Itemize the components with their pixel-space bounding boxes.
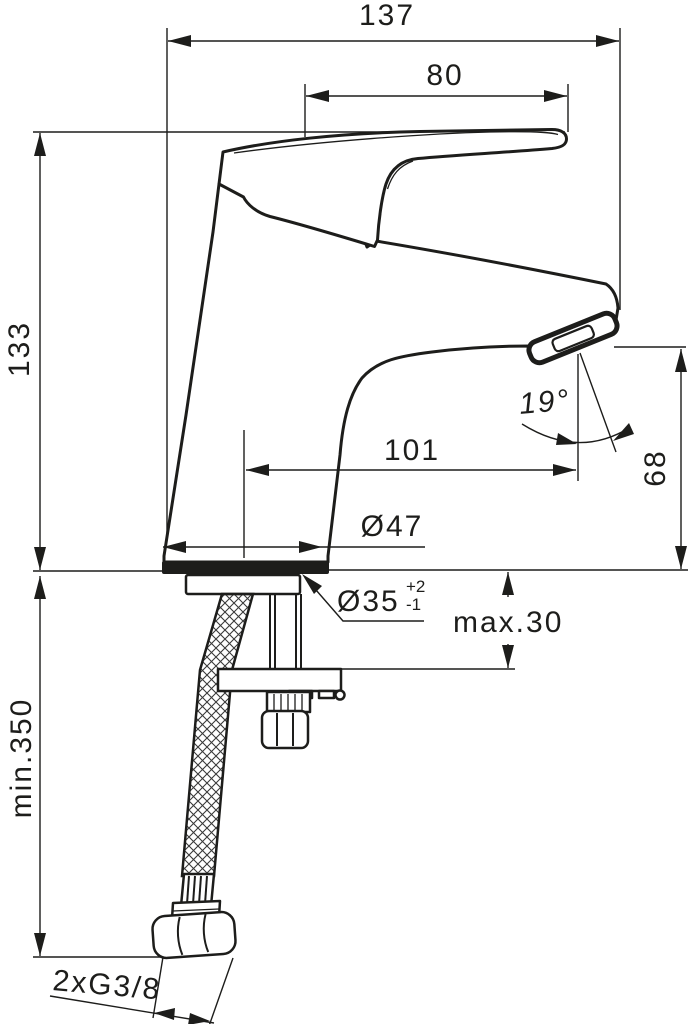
technical-drawing: 137 80 133 101 Ø47 19° 68 Ø35 +2 -1 max.…: [0, 0, 688, 1024]
undercounter-assembly: [152, 575, 345, 959]
supply-hose: [182, 594, 253, 876]
hose-connection-nut: [152, 911, 237, 959]
label-hose-length: min.350: [5, 698, 38, 819]
label-spout-height: 68: [639, 449, 672, 486]
mounting-shank: [270, 594, 301, 668]
label-hole-tolerance-plus: +2: [406, 577, 425, 596]
label-hole-diameter: Ø35: [337, 585, 400, 618]
mounting-nut: [262, 711, 308, 748]
label-height-above-deck: 133: [3, 321, 36, 377]
label-connection-thread: 2xG3/8: [51, 964, 162, 1006]
label-overall-width: 137: [359, 0, 415, 32]
drawing-page: 137 80 133 101 Ø47 19° 68 Ø35 +2 -1 max.…: [0, 0, 688, 1024]
label-base-diameter: Ø47: [361, 510, 424, 543]
mounting-stud: [267, 692, 310, 712]
hose-end-fitting: [152, 874, 237, 959]
dimension-hose-length: [33, 576, 163, 957]
label-hole-tolerance-minus: -1: [406, 595, 421, 614]
label-deck-thickness: max.30: [453, 606, 563, 639]
mounting-flange: [186, 575, 300, 594]
label-lever-length: 80: [426, 59, 463, 92]
faucet-body: [164, 184, 618, 562]
label-spout-reach: 101: [384, 434, 440, 467]
faucet-base-band: [162, 561, 329, 574]
label-spout-angle: 19°: [518, 384, 572, 421]
